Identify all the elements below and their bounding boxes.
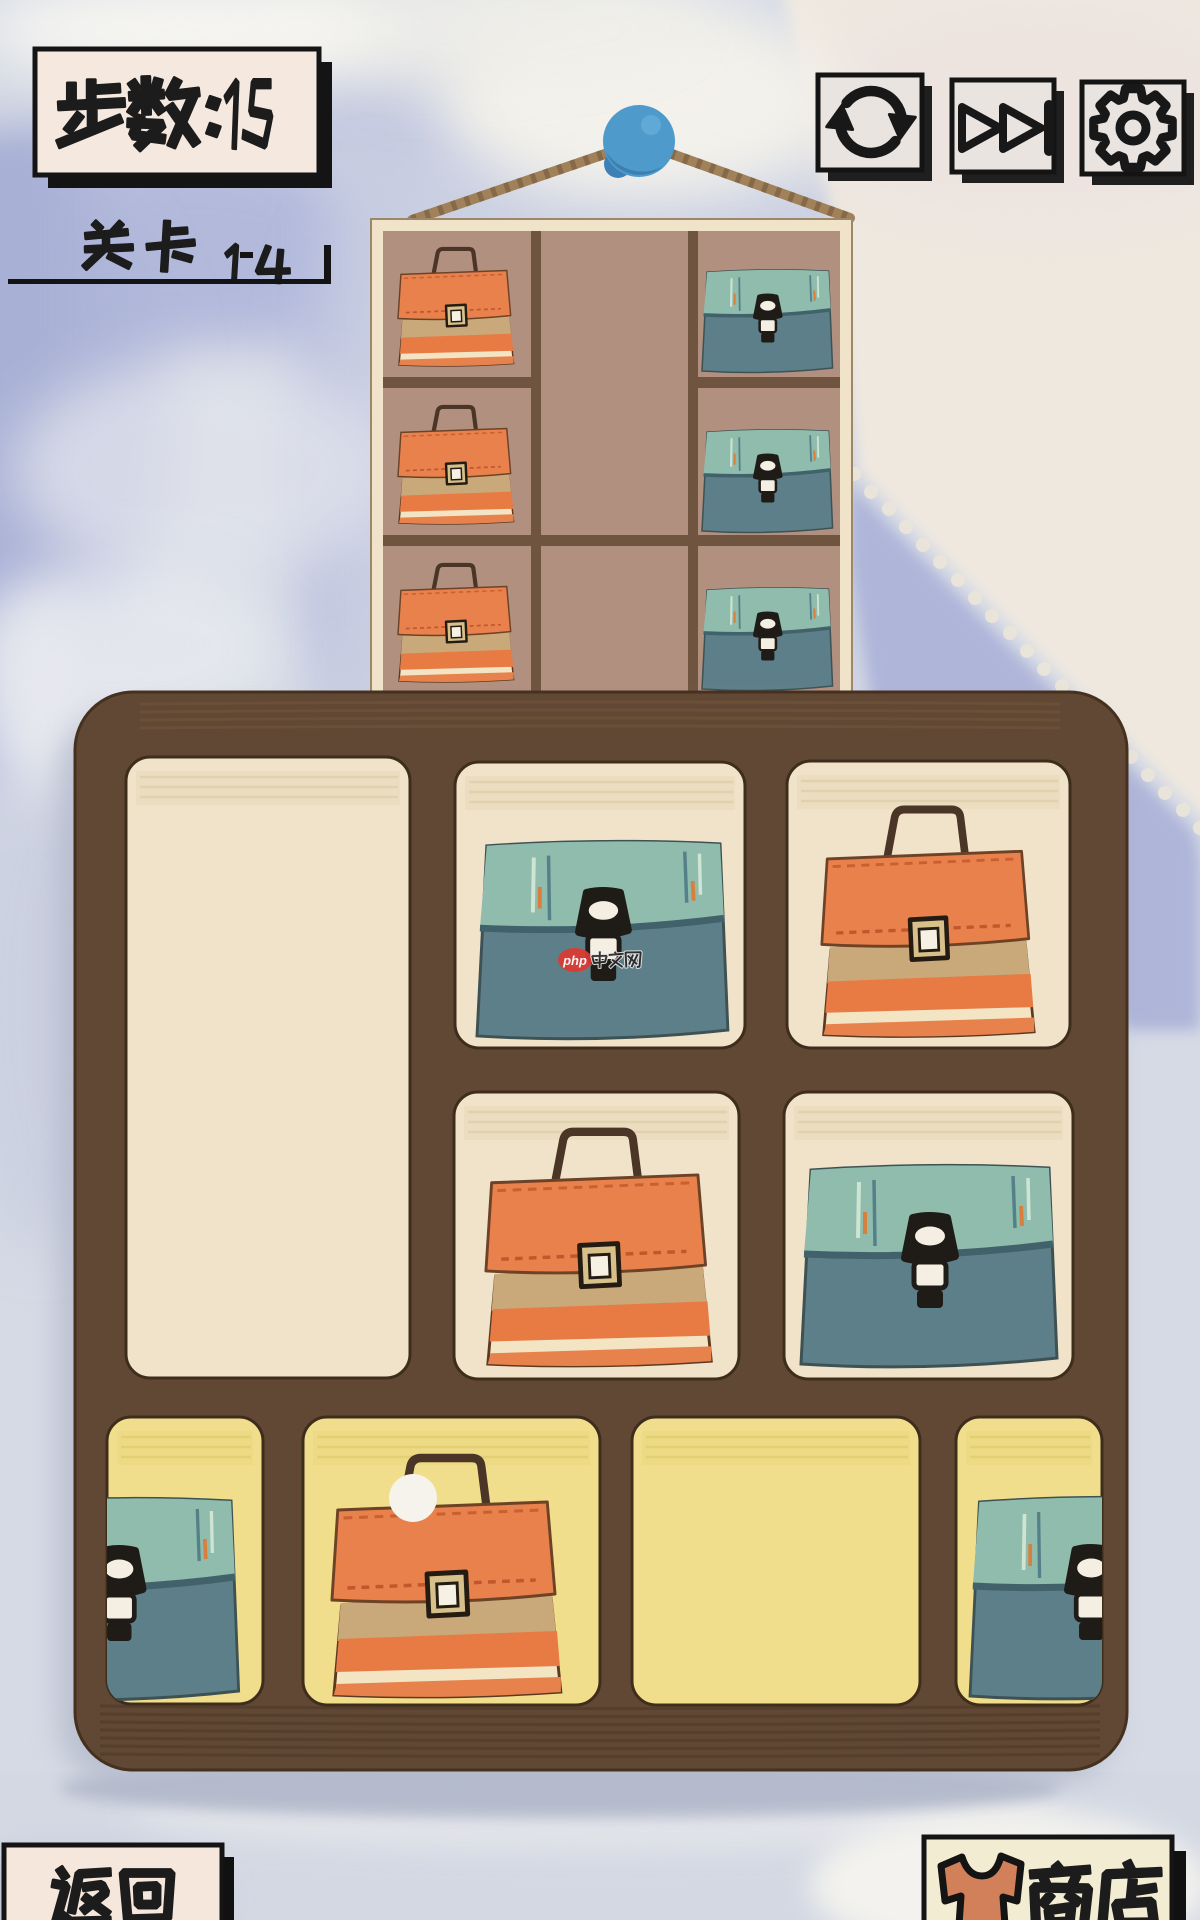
svg-text:php: php (562, 953, 587, 968)
